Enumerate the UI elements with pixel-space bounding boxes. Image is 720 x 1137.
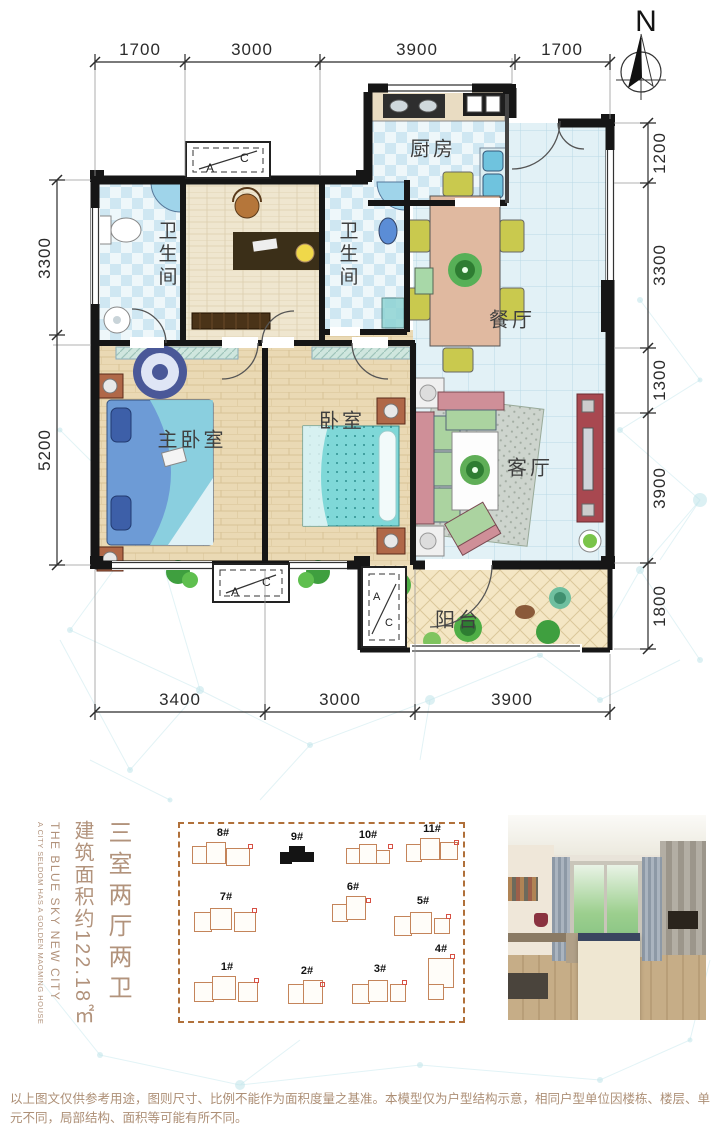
unit-type-title: 三室两厅两卫 bbox=[100, 820, 135, 1006]
photo-wall-niche bbox=[668, 911, 698, 929]
building-5: 5# bbox=[394, 910, 452, 940]
dim-right-5: 1800 bbox=[650, 585, 670, 627]
floorplan-page: A C A C A C bbox=[0, 0, 720, 1137]
ac-label-c: C bbox=[385, 617, 393, 629]
north-label: N bbox=[635, 5, 657, 39]
room-label-dining: 餐厅 bbox=[489, 304, 535, 333]
building-label: 5# bbox=[417, 895, 429, 907]
dim-left-2: 5200 bbox=[35, 429, 55, 471]
building-4: 4# bbox=[426, 958, 456, 1002]
room-label-living: 客厅 bbox=[507, 452, 553, 481]
building-label: 9# bbox=[291, 831, 303, 843]
building-label: 10# bbox=[359, 829, 377, 841]
dim-top-1: 1700 bbox=[119, 40, 161, 60]
room-label-bedroom: 卧室 bbox=[319, 405, 365, 434]
ac-label-c: C bbox=[262, 575, 271, 589]
dim-bottom-3: 3900 bbox=[491, 690, 533, 710]
ac-label-a: A bbox=[231, 585, 239, 599]
photo-lamp bbox=[534, 913, 548, 927]
room-label-bathroom-2: 卫生间 bbox=[334, 221, 361, 290]
room-label-bathroom-1: 卫生间 bbox=[153, 221, 180, 290]
room-label-balcony: 阳台 bbox=[435, 604, 481, 633]
floorplan-drawing: A C A C A C bbox=[0, 0, 720, 780]
ac-label-a: A bbox=[373, 591, 381, 603]
project-slogan-english: A CITY SELDOM HAS A GOLDEN MAOMING HOUSE bbox=[36, 822, 45, 1024]
dim-right-3: 1300 bbox=[650, 359, 670, 401]
building-2: 2# bbox=[288, 980, 326, 1008]
building-8: 8# bbox=[192, 842, 254, 870]
room-label-kitchen: 厨房 bbox=[410, 133, 456, 162]
building-label: 7# bbox=[220, 891, 232, 903]
photo-desk bbox=[508, 933, 566, 942]
building-label: 3# bbox=[374, 963, 386, 975]
ac-unit-bottom: A C bbox=[213, 564, 289, 602]
interior-photo bbox=[508, 815, 706, 1020]
dim-bottom-2: 3000 bbox=[319, 690, 361, 710]
north-arrow-icon bbox=[616, 34, 666, 100]
building-1: 1# bbox=[194, 976, 260, 1006]
building-label: 8# bbox=[217, 827, 229, 839]
building-label: 6# bbox=[347, 881, 359, 893]
ac-unit-top: A C bbox=[186, 142, 270, 178]
dim-top-2: 3000 bbox=[231, 40, 273, 60]
unit-area-text: 建筑面积约122.18㎡ bbox=[68, 820, 97, 1025]
building-6: 6# bbox=[332, 896, 374, 926]
photo-bench bbox=[508, 973, 548, 999]
photo-left-wall bbox=[508, 845, 554, 965]
photo-bed bbox=[578, 933, 640, 1020]
building-11: 11# bbox=[406, 838, 458, 866]
building-7: 7# bbox=[194, 906, 258, 936]
building-label: 4# bbox=[435, 943, 447, 955]
dim-right-2: 3300 bbox=[650, 244, 670, 286]
ac-label-a: A bbox=[206, 161, 214, 175]
dim-bottom-1: 3400 bbox=[159, 690, 201, 710]
dim-right-1: 1200 bbox=[650, 132, 670, 174]
photo-shelf bbox=[508, 877, 538, 901]
building-10: 10# bbox=[346, 844, 390, 868]
ac-unit-balcony: A C bbox=[362, 567, 406, 647]
project-name-english: THE BLUE SKY NEW CITY bbox=[48, 822, 62, 1001]
dim-top-4: 1700 bbox=[541, 40, 583, 60]
building-3: 3# bbox=[352, 978, 408, 1006]
building-label: 1# bbox=[221, 961, 233, 973]
building-label: 2# bbox=[301, 965, 313, 977]
room-label-master-bedroom: 主卧室 bbox=[158, 424, 227, 453]
siteplan-panel: 8# 9# 10# 11# 7# bbox=[178, 822, 465, 1023]
dim-right-4: 3900 bbox=[650, 467, 670, 509]
ac-label-c: C bbox=[240, 151, 249, 165]
building-label: 11# bbox=[423, 823, 441, 835]
dim-top-3: 3900 bbox=[396, 40, 438, 60]
photo-curtain-right bbox=[642, 857, 662, 961]
disclaimer-text: 以上图文仅供参考用途，图则尺寸、比例不能作为面积度量之基准。本模型仅为户型结构示… bbox=[10, 1090, 712, 1129]
dim-left-1: 3300 bbox=[35, 237, 55, 279]
building-9-highlighted: 9# bbox=[280, 846, 314, 866]
